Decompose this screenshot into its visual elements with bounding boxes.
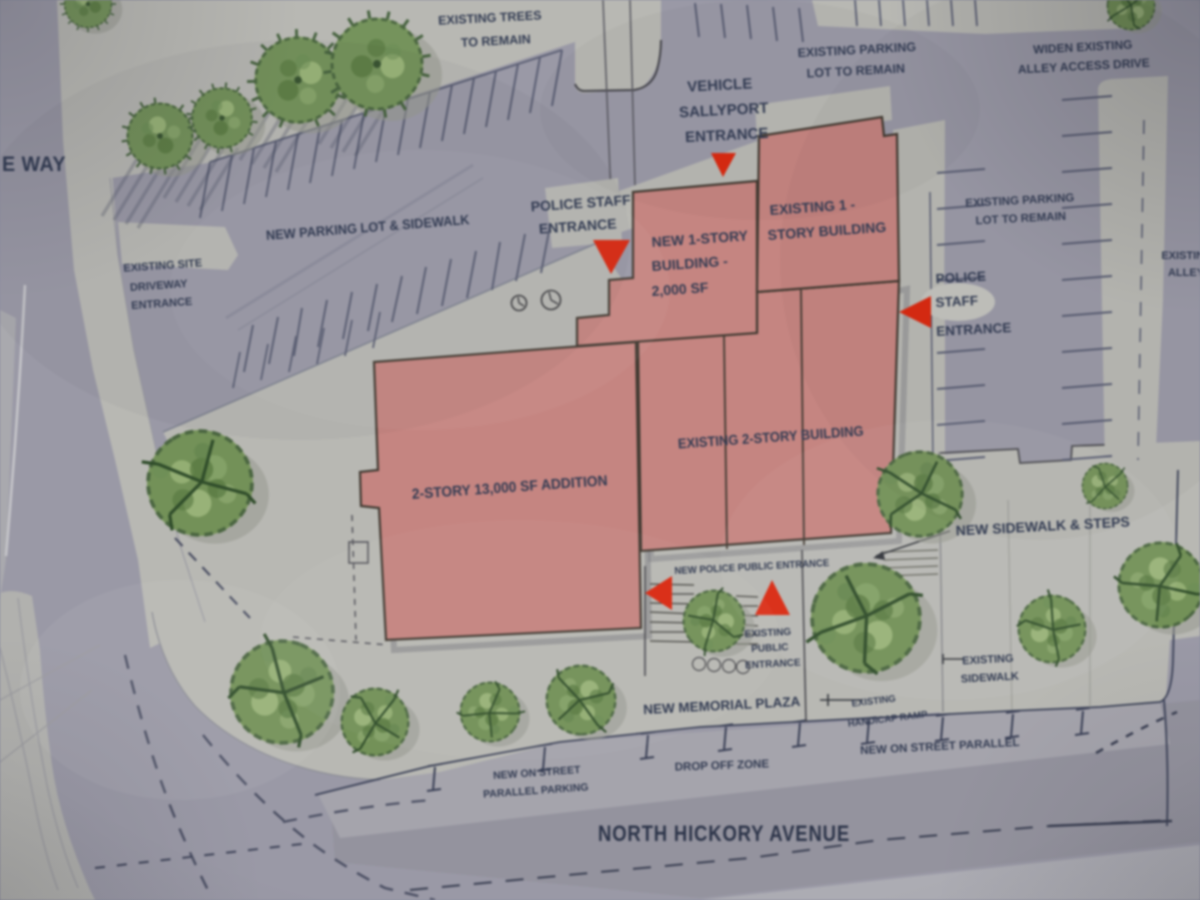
svg-text:ALLEY: ALLEY — [1168, 267, 1200, 279]
svg-text:PUBLIC: PUBLIC — [751, 642, 789, 655]
svg-text:NORTH HICKORY AVENUE: NORTH HICKORY AVENUE — [598, 821, 850, 846]
svg-text:VEHICLE: VEHICLE — [687, 75, 753, 95]
svg-text:E WAY: E WAY — [2, 153, 66, 176]
svg-text:EXISTING: EXISTING — [1161, 250, 1200, 262]
svg-text:POLICE: POLICE — [935, 269, 986, 287]
svg-text:STAFF: STAFF — [935, 293, 978, 310]
